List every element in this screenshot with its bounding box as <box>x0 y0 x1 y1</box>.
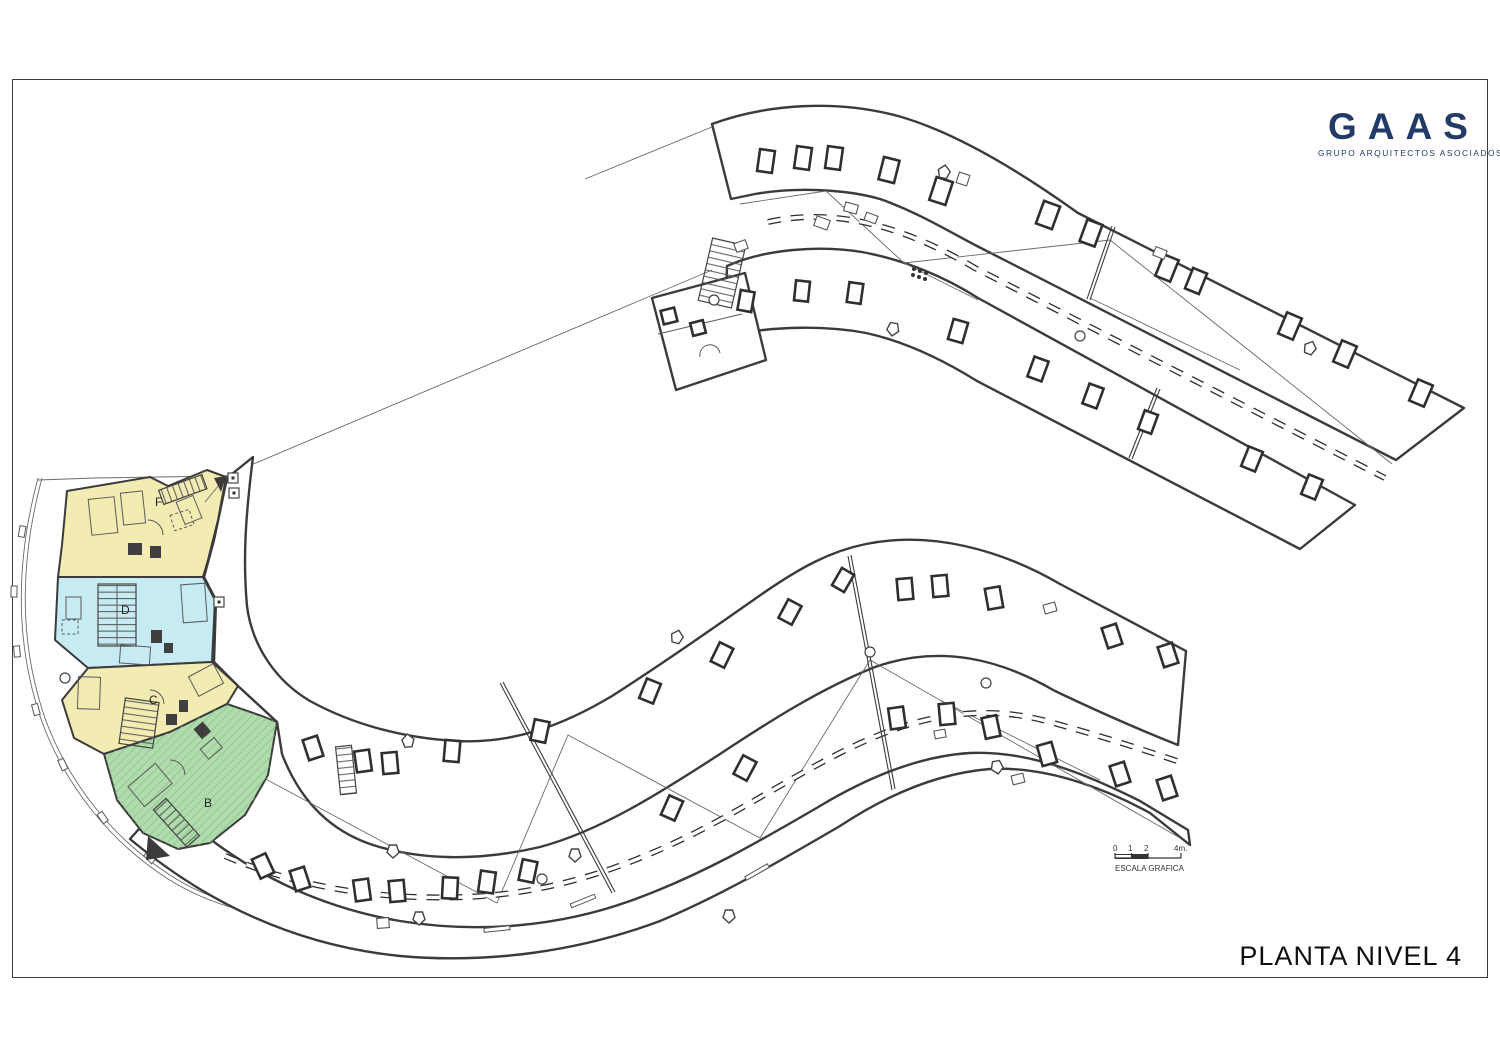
scale-tick-2: 2 <box>1144 844 1149 853</box>
property-line <box>225 270 712 476</box>
sheet-title: PLANTA NIVEL 4 <box>1239 941 1462 972</box>
unit-b-label: B <box>204 796 212 810</box>
scale-bar-label: ESCALA GRAFICA <box>1115 864 1185 873</box>
logo-subtitle: GRUPO ARQUITECTOS ASOCIADOS <box>1318 148 1478 158</box>
upper-wing-strip-b <box>725 249 1355 549</box>
scale-tick-4m: 4m. <box>1174 844 1187 853</box>
unit-d-label: D <box>121 603 130 617</box>
lower-wing-strip-c <box>204 457 1186 857</box>
scale-tick-1: 1 <box>1128 844 1133 853</box>
logo-wordmark: GAAS <box>1318 108 1489 145</box>
lower-wing <box>130 457 1190 958</box>
unit-f-label: F <box>155 495 162 509</box>
floor-plan-canvas: F D C B 0 1 2 4m. ESCALA GRAFICA <box>0 0 1500 1060</box>
unit-c-label: C <box>149 693 158 707</box>
property-line <box>585 127 712 179</box>
scale-bar: 0 1 2 4m. ESCALA GRAFICA <box>1113 844 1187 873</box>
upper-wing <box>652 106 1464 549</box>
scale-tick-0: 0 <box>1113 844 1118 853</box>
logo: GAAS GRUPO ARQUITECTOS ASOCIADOS <box>1318 108 1478 158</box>
